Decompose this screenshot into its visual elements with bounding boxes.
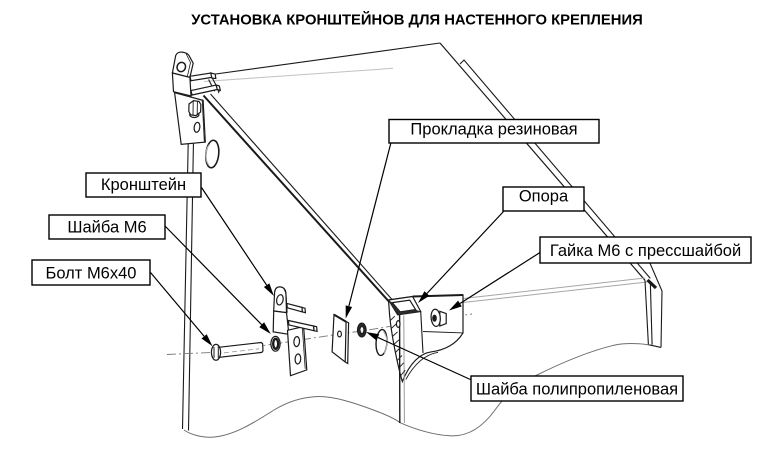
svg-text:Кронштейн: Кронштейн [101,176,186,194]
svg-text:УСТАНОВКА КРОНШТЕЙНОВ ДЛЯ НАСТ: УСТАНОВКА КРОНШТЕЙНОВ ДЛЯ НАСТЕННОГО КРЕ… [191,11,643,29]
svg-text:Шайба полипропиленовая: Шайба полипропиленовая [476,381,678,399]
svg-text:Гайка М6 с прессшайбой: Гайка М6 с прессшайбой [550,242,741,260]
svg-text:Прокладка резиновая: Прокладка резиновая [410,121,577,139]
svg-text:Опора: Опора [519,188,569,206]
svg-text:Болт М6х40: Болт М6х40 [46,265,137,283]
svg-text:Шайба М6: Шайба М6 [67,219,146,237]
